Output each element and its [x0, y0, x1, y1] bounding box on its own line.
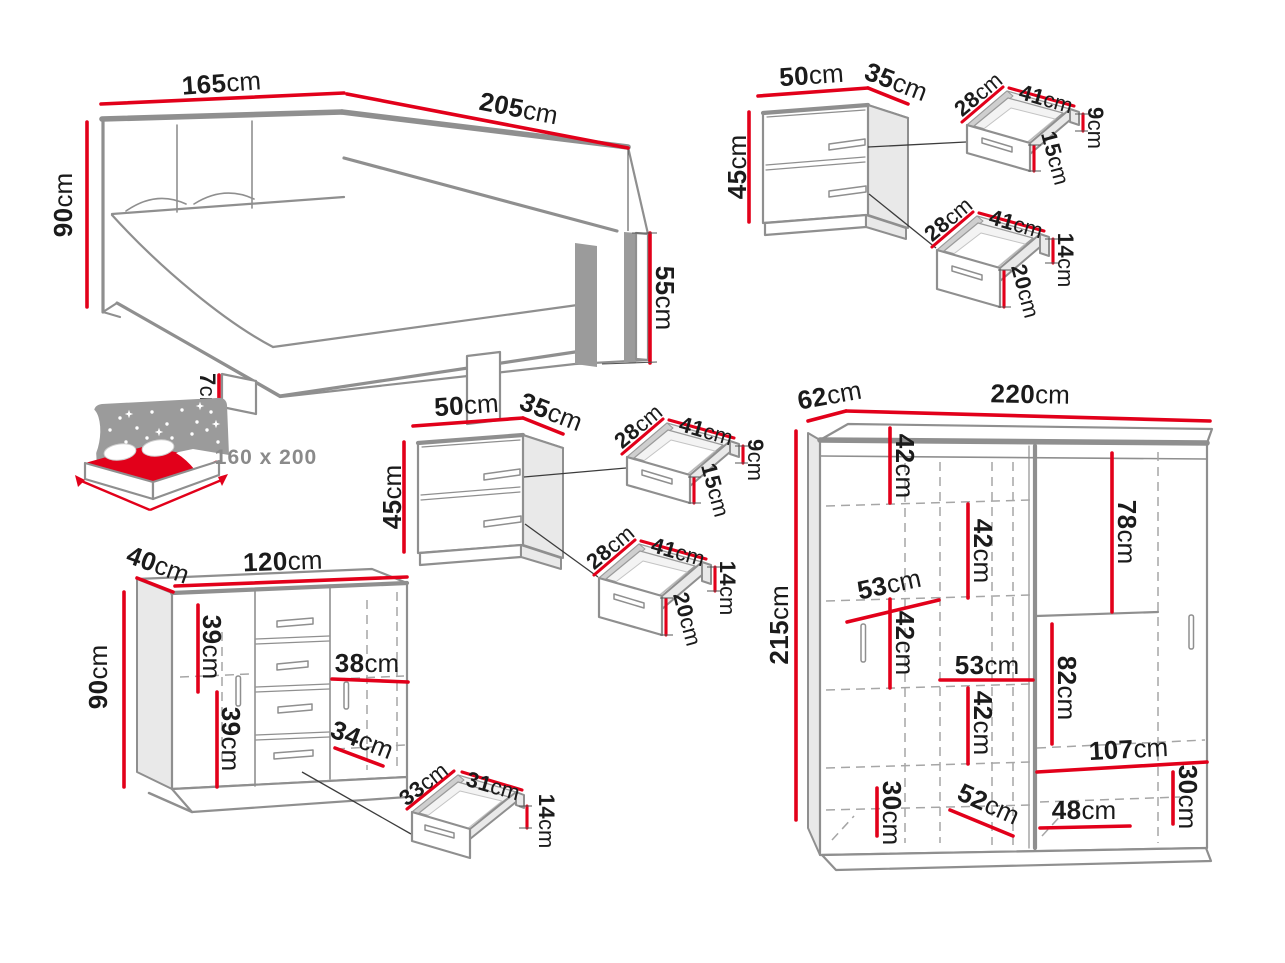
wardrobe-right-door-handle — [1189, 615, 1194, 649]
dim-unit: cm — [365, 648, 400, 678]
dim-value: 14 — [715, 561, 740, 587]
wardrobe-width-label: 220cm — [990, 378, 1070, 409]
dresser: 40cm 120cm 90cm 39cm 39cm 38cm 34cm 33cm… — [83, 539, 559, 858]
dim-unit: cm — [1053, 258, 1078, 287]
dim-unit: cm — [1112, 530, 1142, 565]
dim-unit: cm — [534, 819, 559, 848]
drawer-front-height-label: 15cm — [1036, 128, 1074, 187]
dim-value: 215 — [764, 620, 794, 665]
dim-unit: cm — [521, 94, 561, 130]
dim-value: 39 — [216, 707, 246, 737]
wardrobe: 62cm 220cm 215cm 42cm 42cm 53cm 42cm 53c… — [764, 375, 1212, 870]
drawer-side-height-label: 9cm — [743, 439, 768, 481]
dim-unit: cm — [1035, 379, 1070, 410]
drawer-side-height-label: 14cm — [1053, 233, 1078, 288]
dim-value: 14 — [534, 794, 559, 820]
bed-length-label: 205cm — [477, 86, 561, 131]
dim-unit: cm — [703, 485, 735, 520]
nightstand-2: 50cm 35cm 45cm 28cm 41cm 9cm 15cm 28cm 4… — [377, 386, 768, 649]
dim-unit: cm — [764, 585, 794, 620]
dim-value: 90 — [48, 207, 78, 237]
wardrobe-depth-label: 62cm — [795, 375, 864, 416]
dim-unit: cm — [1173, 795, 1203, 830]
dim-unit: cm — [890, 464, 920, 499]
dresser-height-label: 90cm — [83, 645, 113, 709]
dim-unit: cm — [48, 173, 78, 208]
dim-value: 45 — [377, 499, 407, 529]
dim-value: 107 — [1088, 734, 1134, 766]
dim-unit: cm — [743, 452, 768, 481]
dim-value: 45 — [722, 169, 752, 199]
wardrobe-right-top-height-label: 78cm — [1112, 500, 1142, 564]
dim-unit: cm — [877, 811, 907, 846]
dim-value: 48 — [1052, 795, 1082, 825]
dresser-door-inner-width-label: 38cm — [335, 648, 399, 678]
wardrobe-right-mid-height-label: 82cm — [1052, 656, 1082, 720]
dim-value: 55 — [650, 266, 680, 296]
dim-value: 42 — [968, 691, 998, 721]
dim-value: 7 — [195, 373, 220, 386]
dim-unit: cm — [463, 388, 500, 420]
dim-unit: cm — [968, 721, 998, 756]
dresser-right-door-handle — [344, 682, 349, 709]
dim-unit: cm — [968, 549, 998, 584]
dim-value: 9 — [743, 439, 768, 452]
dim-unit: cm — [675, 614, 707, 649]
dim-unit: cm — [287, 545, 323, 576]
dim-unit: cm — [650, 296, 680, 331]
furniture-dimension-diagram: 165cm 205cm 90cm 55cm 7cm 160 x 200 50cm… — [0, 0, 1285, 963]
nightstand-2-width-label: 50cm — [433, 388, 499, 422]
dim-value: 120 — [243, 546, 289, 578]
dim-unit: cm — [1082, 795, 1117, 825]
dresser-lower-section-label: 39cm — [216, 707, 246, 771]
wardrobe-left-shelf-3-label: 42cm — [890, 611, 920, 675]
dim-unit: cm — [1133, 732, 1169, 764]
drawer-front-height-label: 20cm — [668, 589, 706, 648]
dim-unit: cm — [985, 650, 1020, 680]
wardrobe-left-shelf-2-label: 42cm — [968, 519, 998, 583]
dim-value: 9 — [1083, 107, 1108, 120]
dim-unit: cm — [1043, 153, 1075, 188]
dim-unit: cm — [715, 586, 740, 615]
bed-foot-panel — [575, 243, 597, 367]
dim-unit: cm — [377, 465, 407, 500]
dim-value: 30 — [1173, 765, 1203, 795]
drawer-front-height-label: 15cm — [696, 460, 734, 519]
wardrobe-right-width-label: 107cm — [1088, 732, 1169, 766]
dim-unit: cm — [1052, 686, 1082, 721]
dim-unit: cm — [1013, 286, 1045, 321]
dim-value: 14 — [1053, 233, 1078, 259]
dim-value: 42 — [890, 434, 920, 464]
dresser-left-door-handle — [236, 676, 241, 706]
drawer-side-height-label: 14cm — [715, 561, 740, 616]
nightstand-2-height-label: 45cm — [377, 465, 407, 529]
drawer-side-height-label: 9cm — [1083, 107, 1108, 149]
dim-unit: cm — [890, 641, 920, 676]
dim-value: 42 — [968, 519, 998, 549]
wardrobe-bottom-right-width-label: 48cm — [1052, 795, 1116, 825]
drawer-height-label: 14cm — [534, 794, 559, 849]
dim-value: 82 — [1052, 656, 1082, 686]
dresser-upper-section-label: 39cm — [197, 615, 227, 679]
wardrobe-height-label: 215cm — [764, 585, 794, 664]
nightstand-1: 50cm 35cm 45cm 28cm 41cm 9cm 15cm 28cm 4… — [722, 56, 1108, 321]
dim-value: 38 — [335, 648, 365, 678]
dim-value: 90 — [83, 679, 113, 709]
bed-footboard-height-label: 55cm — [650, 266, 680, 330]
bed-diagram: 165cm 205cm 90cm 55cm 7cm — [48, 65, 680, 424]
wardrobe-mid-width-label: 53cm — [955, 650, 1019, 680]
dim-unit: cm — [225, 65, 262, 97]
dim-unit: cm — [216, 737, 246, 772]
mattress-size-label: 160 x 200 — [215, 446, 317, 469]
dim-value: 165 — [181, 68, 228, 101]
wardrobe-bottom-right-height-label: 30cm — [1173, 765, 1203, 829]
wardrobe-mid-shelf-label: 42cm — [968, 691, 998, 755]
wardrobe-left-shelf-1-label: 42cm — [890, 434, 920, 498]
bed-width-label: 165cm — [181, 65, 262, 100]
dim-value: 39 — [197, 615, 227, 645]
nightstand-1-height-label: 45cm — [722, 135, 752, 199]
diagram-canvas: 165cm 205cm 90cm 55cm 7cm 160 x 200 50cm… — [0, 0, 1285, 963]
nightstand-1-width-label: 50cm — [778, 58, 844, 92]
dim-unit: cm — [83, 645, 113, 680]
drawer-front-height-label: 20cm — [1006, 261, 1044, 320]
wardrobe-bottom-left-height-label: 30cm — [877, 781, 907, 845]
dim-value: 220 — [990, 378, 1035, 409]
bed-headboard-height-label: 90cm — [48, 173, 78, 237]
dim-value: 30 — [877, 781, 907, 811]
nightstand-2-body — [418, 435, 563, 569]
dim-value: 53 — [955, 650, 985, 680]
dim-unit: cm — [197, 645, 227, 680]
nightstand-1-body — [763, 105, 908, 239]
wardrobe-left-door-handle — [861, 624, 866, 662]
bed-foot-side-panel — [624, 232, 636, 363]
dim-unit: cm — [808, 58, 845, 90]
dim-value: 50 — [433, 390, 465, 422]
dim-unit: cm — [1083, 120, 1108, 149]
dim-value: 78 — [1112, 500, 1142, 530]
dim-value: 205 — [477, 86, 526, 124]
bed-size-icon: 160 x 200 — [73, 398, 317, 510]
dim-value: 42 — [890, 611, 920, 641]
dim-unit: cm — [824, 375, 863, 411]
dim-value: 50 — [778, 60, 810, 92]
dresser-width-label: 120cm — [243, 545, 323, 578]
dim-unit: cm — [722, 135, 752, 170]
